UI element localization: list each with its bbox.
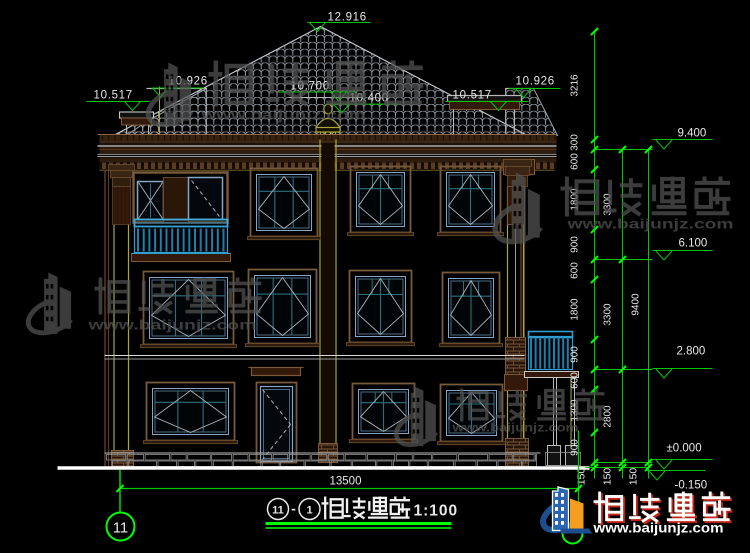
svg-text:13500: 13500 [330, 476, 362, 488]
svg-text:6.100: 6.100 [679, 238, 708, 250]
svg-text:12.916: 12.916 [328, 12, 367, 24]
svg-text:300: 300 [570, 134, 581, 151]
svg-text:www.baijunjz.com: www.baijunjz.com [592, 521, 723, 536]
svg-text:1: 1 [306, 505, 312, 517]
svg-text:900: 900 [570, 236, 581, 253]
svg-text:150: 150 [602, 468, 614, 486]
svg-text:150: 150 [628, 468, 640, 486]
svg-text:1800: 1800 [570, 298, 581, 321]
svg-text:www.baijunjz.com: www.baijunjz.com [200, 107, 365, 123]
svg-text:600: 600 [570, 372, 581, 389]
svg-text:10.517: 10.517 [94, 90, 133, 102]
svg-text:11: 11 [272, 505, 284, 517]
svg-text:900: 900 [570, 346, 581, 363]
svg-text:-: - [291, 501, 296, 517]
svg-text:10.926: 10.926 [516, 76, 555, 88]
svg-text:www.baijunjz.com: www.baijunjz.com [451, 421, 578, 435]
svg-text:11: 11 [113, 520, 129, 537]
svg-text:600: 600 [570, 262, 581, 279]
svg-text:9400: 9400 [631, 293, 642, 316]
svg-text:9.400: 9.400 [678, 128, 707, 140]
svg-text:www.baijunjz.com: www.baijunjz.com [566, 216, 733, 232]
svg-text:150: 150 [576, 468, 588, 486]
svg-text:10.517: 10.517 [453, 90, 492, 102]
svg-text:2.800: 2.800 [677, 346, 706, 358]
svg-text:3300: 3300 [603, 303, 614, 326]
svg-text:±0.000: ±0.000 [667, 443, 702, 455]
svg-text:1:100: 1:100 [414, 503, 459, 520]
svg-text:600: 600 [570, 153, 581, 170]
svg-text:www.baijunjz.com: www.baijunjz.com [87, 317, 256, 333]
svg-text:3216: 3216 [570, 74, 581, 97]
svg-text:-0.150: -0.150 [675, 480, 708, 492]
